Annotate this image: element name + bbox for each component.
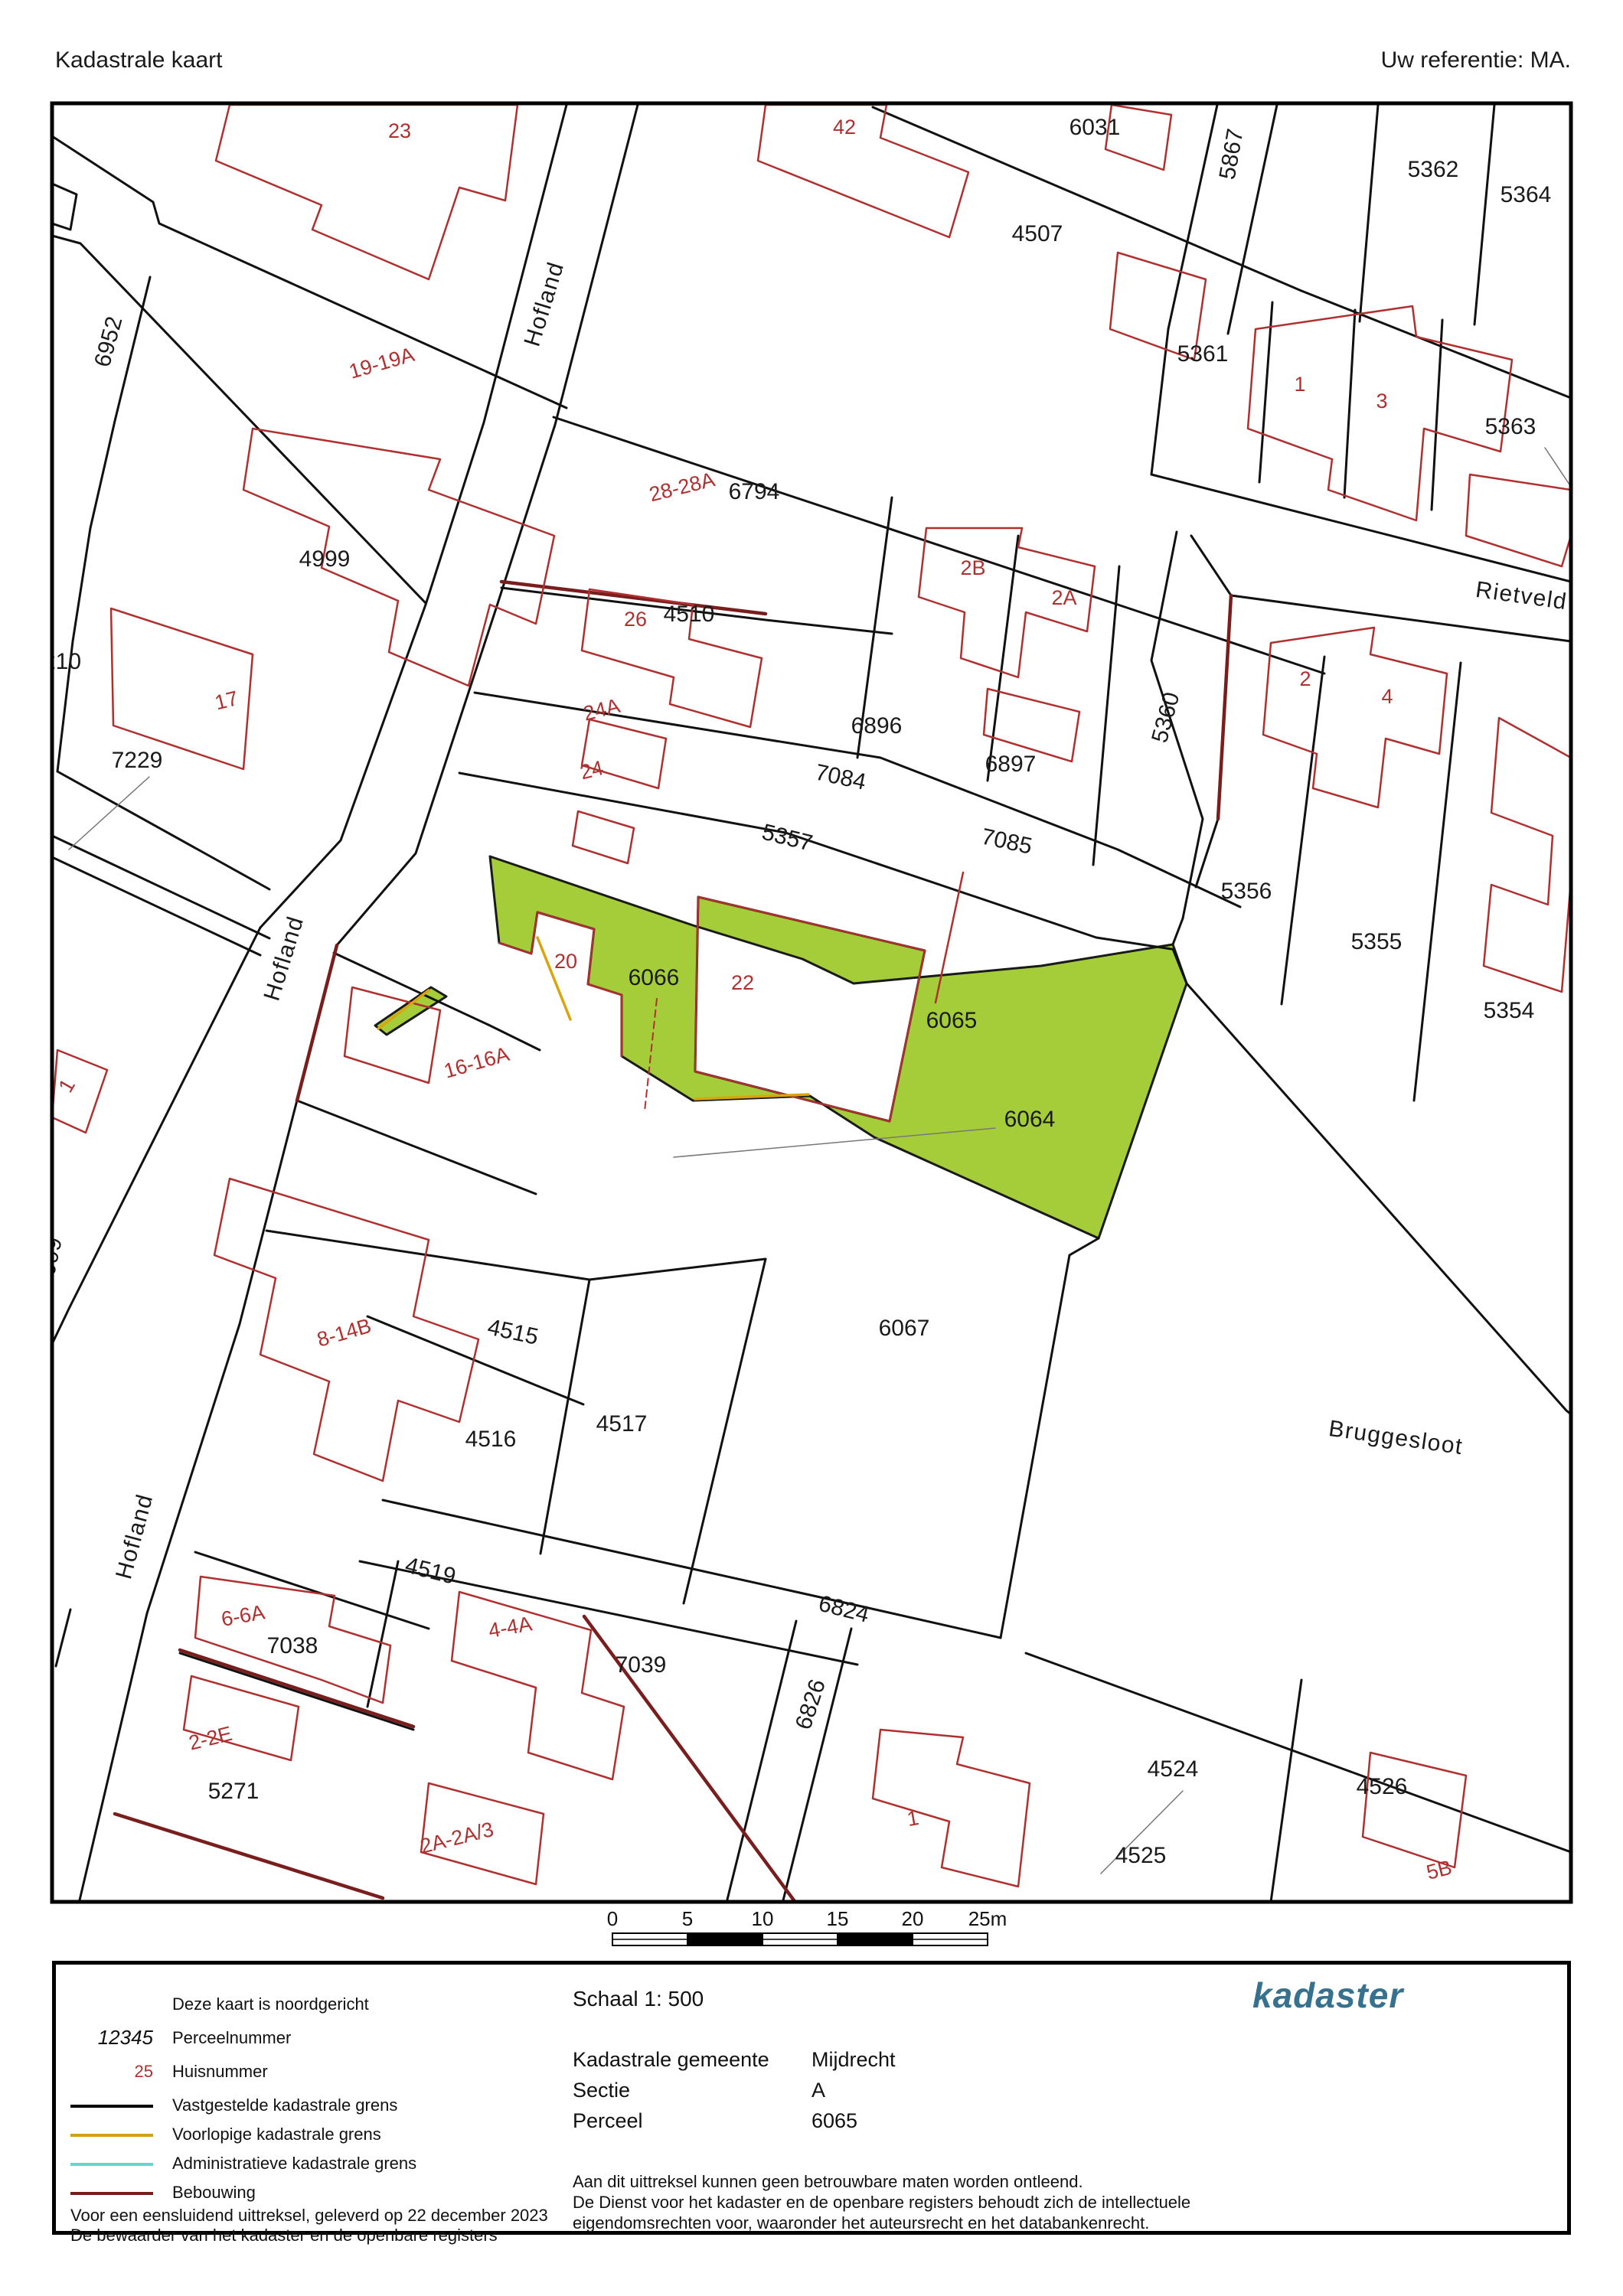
building-outline [1484, 718, 1571, 992]
boundary-line [1168, 105, 1217, 329]
building-outline [1466, 475, 1571, 566]
street-name-label: Hofland [259, 913, 309, 1004]
disclaimer-line: eigendomsrechten voor, waaronder het aut… [573, 2213, 1149, 2233]
parcel-number-label: 4999 [299, 546, 351, 572]
parcel-number-label: 4524 [1148, 1756, 1199, 1782]
boundary-line [52, 928, 260, 1344]
legend-item-label: Voorlopige kadastrale grens [172, 2125, 381, 2144]
street-name-label: Bruggesloot [1327, 1416, 1465, 1459]
parcel-number-label: 6794 [729, 479, 780, 504]
boundary-line [1432, 320, 1442, 510]
house-number-label: 5B [1424, 1856, 1454, 1884]
parcel-number-label: 6826 [791, 1676, 831, 1733]
boundary-line [52, 236, 426, 603]
parcel-number-label: 6031 [1069, 115, 1121, 140]
boundary-line [1474, 105, 1494, 325]
info-row-label: Kadastrale gemeente [573, 2048, 769, 2072]
boundary-line [1151, 329, 1168, 475]
delivery-note-line1: Voor een eensluidend uittreksel, gelever… [70, 2206, 548, 2226]
leader-line [1545, 448, 1571, 487]
boundary-line [459, 773, 1171, 949]
parcel-number-label: 6066 [629, 965, 680, 990]
boundary-line [1344, 310, 1355, 497]
house-number-label: 16-16A [442, 1042, 512, 1083]
scale-bar-tick-label: 20 [902, 1907, 924, 1930]
parcel-number-label: 4525 [1115, 1843, 1167, 1868]
parcel-number-label: 4517 [596, 1411, 648, 1437]
parcel-number-label: 5361 [1177, 341, 1229, 367]
boundary-line [367, 1561, 398, 1707]
boundary-line [266, 1231, 766, 1280]
disclaimer-line: Aan dit uittreksel kunnen geen betrouwba… [573, 2172, 1083, 2192]
legend-item-label: Vastgestelde kadastrale grens [172, 2095, 397, 2115]
building-outline [243, 429, 554, 686]
parcel-number-label: 4526 [1357, 1774, 1408, 1799]
building-outline [573, 811, 634, 863]
parcel-number-label: 5360 [1147, 690, 1184, 745]
building-outline [452, 1592, 624, 1779]
info-row-label: Sectie [573, 2079, 630, 2102]
scale-bar-tick-label: 5 [682, 1907, 693, 1930]
boundary-line [1271, 1680, 1301, 1902]
house-number-label: 28-28A [647, 468, 717, 506]
parcel-number-label: 5271 [208, 1779, 260, 1804]
house-number-label: 24A [581, 694, 622, 726]
house-number-label: 6-6A [220, 1600, 266, 1630]
boundary-line [1196, 595, 1231, 887]
info-row-value: 6065 [811, 2109, 857, 2133]
building-boundary-line [297, 945, 337, 1101]
street-name-label: Hofland [519, 259, 569, 350]
boundary-line [684, 1259, 766, 1603]
boundary-line [554, 417, 1324, 673]
info-row-value: Mijdrecht [811, 2048, 896, 2072]
house-number-label: 2A-2A/3 [418, 1818, 496, 1858]
legend-line-swatch [70, 2105, 153, 2108]
house-number-label: 1 [905, 1806, 920, 1831]
scale-text: Schaal 1: 500 [573, 1987, 704, 2011]
parcel-number-label: 210 [43, 649, 81, 674]
house-number-label: 26 [624, 608, 647, 631]
parcel-number-label: 6067 [879, 1316, 930, 1341]
parcel-number-label: 5356 [1221, 879, 1272, 904]
house-number-label: 17 [213, 687, 240, 714]
boundary-line [383, 1500, 1001, 1638]
building-boundary-line [1218, 595, 1231, 819]
house-number-label: 3 [1376, 390, 1387, 413]
boundary-line [1151, 475, 1571, 582]
parcel-number-label: 6897 [985, 752, 1037, 777]
cadastral-map: 2342603158675362536445075361135363695219… [0, 0, 1623, 2296]
parcel-number-label: 7085 [979, 824, 1034, 859]
boundary-line [1001, 1238, 1099, 1638]
boundary-line [52, 836, 269, 938]
scale-bar-tick-label: 0 [607, 1907, 618, 1930]
house-number-label: 4 [1381, 685, 1393, 708]
scale-bar-tick-label: 10 [752, 1907, 774, 1930]
building-outline [1263, 628, 1447, 807]
parcel-number-label: 7229 [112, 748, 163, 773]
boundary-line [52, 857, 260, 955]
building-outline [1248, 306, 1512, 520]
house-number-label: 4-4A [487, 1612, 534, 1642]
parcel-number-label: 6824 [816, 1591, 872, 1628]
parcel-number-label: 5363 [1485, 414, 1536, 439]
building-boundary-line [115, 1814, 383, 1898]
legend-symbol: 12345 [70, 2026, 153, 2050]
boundary-line [337, 105, 638, 945]
house-number-label: 22 [731, 971, 754, 994]
street-name-label: Rietveld [1474, 577, 1569, 615]
legend-item-label: Perceelnummer [172, 2028, 291, 2048]
building-outline [216, 105, 518, 279]
parcel-number-label: 6064 [1004, 1107, 1056, 1132]
scale-bar-segment [687, 1933, 763, 1945]
parcel-number-label: 5362 [1408, 157, 1459, 182]
disclaimer-line: De Dienst voor het kadaster en de openba… [573, 2193, 1190, 2213]
house-number-label: 2B [960, 556, 985, 579]
kadaster-logo-text: kadaster [1252, 1975, 1403, 2016]
highlighted-parcel [375, 987, 446, 1035]
parcel-number-label: 6952 [90, 314, 127, 370]
house-number-label: 19-19A [347, 343, 417, 383]
info-row-value: A [811, 2079, 825, 2102]
boundary-line [1282, 657, 1324, 1004]
parcel-number-label: 7038 [267, 1633, 318, 1658]
boundary-line [79, 945, 337, 1903]
building-outline [758, 105, 968, 237]
boundary-line [782, 1629, 851, 1903]
boundary-line [1414, 663, 1461, 1101]
parcel-number-label: 5867 [1215, 127, 1249, 181]
boundary-line [1259, 302, 1272, 482]
map-content: 2342603158675362536445075361135363695219… [32, 105, 1571, 1903]
house-number-label: 24 [578, 756, 606, 784]
house-number-label: 1 [1294, 373, 1305, 396]
boundary-line [297, 1101, 536, 1194]
scale-bar-tick-label: 15 [827, 1907, 849, 1930]
delivery-note-line2: De bewaarder van het kadaster en de open… [70, 2226, 498, 2245]
parcel-number-label: 4516 [465, 1427, 517, 1452]
parcel-number-label: 7084 [813, 760, 868, 795]
building-outline [52, 1050, 107, 1133]
boundary-line [1026, 1653, 1571, 1852]
parcel-number-label: 5364 [1501, 182, 1552, 207]
street-name-label: Hofland [111, 1491, 158, 1582]
parcel-number-label: 4510 [664, 602, 715, 627]
leader-line [69, 777, 149, 850]
parcel-number-label: 6896 [851, 713, 903, 739]
house-number-label: 1 [54, 1075, 79, 1096]
parcel-number-label: 6099 [32, 1235, 67, 1290]
legend-item-label: Administratieve kadastrale grens [172, 2154, 416, 2174]
parcel-number-label: 7039 [616, 1652, 667, 1678]
house-number-label: 2A [1051, 586, 1076, 609]
boundary-line [540, 1280, 589, 1554]
legend-line-swatch [70, 2134, 153, 2137]
scale-bar-tick-label: 25m [968, 1907, 1007, 1930]
building-outline [873, 1730, 1030, 1887]
house-number-label: 2-2E [187, 1722, 235, 1755]
parcel-number-label: 4519 [403, 1553, 459, 1590]
boundary-line [56, 1609, 70, 1666]
scale-bar: 0510152025m [607, 1907, 1007, 1945]
house-number-label: 20 [554, 950, 577, 973]
parcel-number-label: 6065 [926, 1008, 978, 1033]
scale-bar-segment [838, 1933, 913, 1945]
legend-north-note: Deze kaart is noordgericht [172, 1994, 369, 2014]
legend-item-label: Huisnummer [172, 2062, 268, 2082]
parcel-number-label: 5357 [759, 820, 815, 856]
building-outline [1363, 1753, 1466, 1867]
legend-line-swatch [70, 2192, 153, 2195]
house-number-label: 8-14B [315, 1314, 374, 1352]
parcel-number-label: 4507 [1012, 221, 1063, 246]
house-number-label: 42 [833, 116, 856, 139]
parcel-number-label: 5354 [1484, 998, 1535, 1023]
boundary-line [367, 1316, 583, 1404]
legend-line-swatch [70, 2163, 153, 2166]
boundary-line [1360, 105, 1378, 321]
info-row-label: Perceel [573, 2109, 643, 2133]
parcel-number-label: 5355 [1351, 929, 1403, 954]
boundary-line [52, 184, 77, 230]
house-number-label: 2 [1299, 667, 1311, 690]
boundary-line [52, 136, 567, 408]
legend-item-label: Bebouwing [172, 2183, 256, 2203]
boundary-line [1093, 566, 1119, 865]
house-number-label: 23 [388, 119, 411, 142]
highlighted-parcel [490, 856, 1187, 1238]
legend-symbol: 25 [70, 2062, 153, 2082]
parcel-number-label: 4515 [485, 1315, 540, 1350]
